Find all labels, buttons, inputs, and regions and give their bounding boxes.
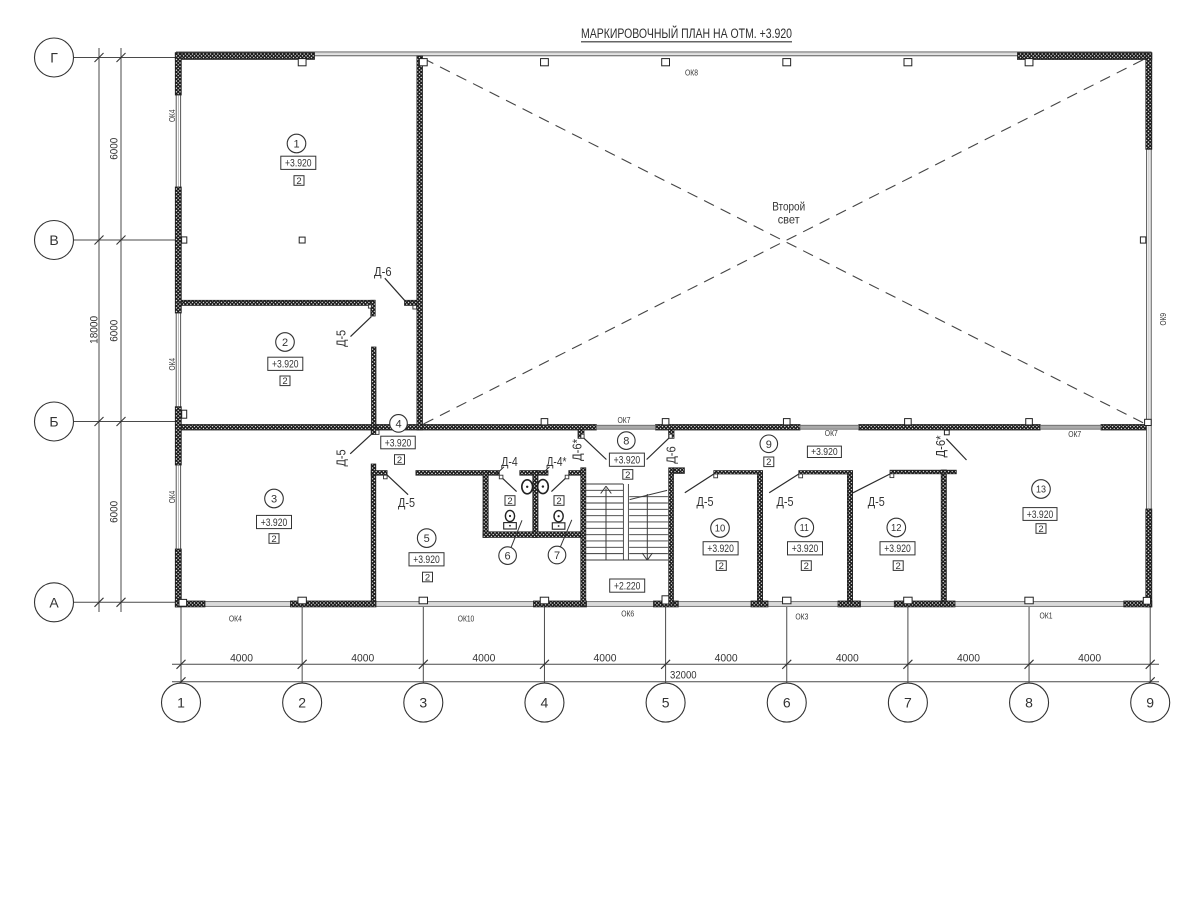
svg-text:В: В <box>49 232 58 248</box>
svg-text:4: 4 <box>395 418 401 430</box>
svg-text:6: 6 <box>505 551 511 563</box>
svg-text:2: 2 <box>397 455 402 466</box>
svg-text:Д-5: Д-5 <box>868 495 885 509</box>
svg-text:2: 2 <box>298 695 306 711</box>
svg-text:2: 2 <box>425 572 430 583</box>
svg-text:13: 13 <box>1036 485 1046 496</box>
svg-text:4000: 4000 <box>351 652 374 664</box>
svg-text:18000: 18000 <box>89 316 101 344</box>
svg-text:3: 3 <box>419 695 427 711</box>
svg-text:4000: 4000 <box>957 652 980 664</box>
svg-text:4000: 4000 <box>715 652 738 664</box>
svg-text:11: 11 <box>800 523 809 534</box>
svg-text:+3.920: +3.920 <box>811 447 838 458</box>
svg-text:4000: 4000 <box>594 652 617 664</box>
svg-text:+3.920: +3.920 <box>272 359 299 371</box>
svg-text:Д-4*: Д-4* <box>547 455 567 469</box>
svg-text:6000: 6000 <box>108 501 120 523</box>
svg-text:1: 1 <box>293 138 299 150</box>
svg-text:ОК10: ОК10 <box>458 615 475 624</box>
svg-text:2: 2 <box>766 457 771 468</box>
svg-text:ОК3: ОК3 <box>795 613 808 622</box>
svg-text:3: 3 <box>271 493 277 505</box>
svg-text:ОК4: ОК4 <box>168 109 177 122</box>
svg-text:ОК4: ОК4 <box>168 358 177 371</box>
svg-text:Д-4: Д-4 <box>501 455 518 469</box>
svg-text:2: 2 <box>625 470 630 481</box>
svg-text:2: 2 <box>507 496 512 507</box>
svg-text:А: А <box>49 594 59 610</box>
svg-text:4: 4 <box>541 695 549 711</box>
svg-text:2: 2 <box>1038 524 1043 535</box>
svg-text:+3.920: +3.920 <box>707 543 734 555</box>
svg-text:+3.920: +3.920 <box>261 517 288 529</box>
svg-text:6: 6 <box>783 695 791 711</box>
svg-text:2: 2 <box>282 337 288 349</box>
svg-text:Д-5: Д-5 <box>777 495 794 509</box>
svg-text:ОК6: ОК6 <box>621 610 634 619</box>
svg-text:+3.920: +3.920 <box>385 437 412 449</box>
svg-text:9: 9 <box>1146 695 1154 711</box>
svg-text:+3.920: +3.920 <box>413 554 440 566</box>
svg-text:+3.920: +3.920 <box>792 543 819 555</box>
svg-text:свет: свет <box>778 215 801 227</box>
svg-text:+2.220: +2.220 <box>614 580 641 592</box>
svg-text:Д-6: Д-6 <box>374 265 392 279</box>
svg-text:Д-5: Д-5 <box>697 495 714 509</box>
svg-text:2: 2 <box>282 376 287 387</box>
svg-text:ОК4: ОК4 <box>168 490 177 503</box>
svg-text:2: 2 <box>296 176 301 187</box>
svg-text:6000: 6000 <box>108 320 120 342</box>
svg-text:Д-5: Д-5 <box>335 449 349 466</box>
svg-text:32000: 32000 <box>670 669 697 681</box>
svg-text:Д-5: Д-5 <box>335 330 349 347</box>
svg-text:+3.920: +3.920 <box>884 543 911 555</box>
svg-text:4000: 4000 <box>230 652 253 664</box>
svg-text:+3.920: +3.920 <box>614 455 641 467</box>
svg-text:2: 2 <box>804 561 809 572</box>
svg-text:1: 1 <box>177 695 185 711</box>
svg-text:4000: 4000 <box>472 652 495 664</box>
svg-text:5: 5 <box>662 695 670 711</box>
svg-text:6000: 6000 <box>108 138 120 160</box>
svg-text:ОК1: ОК1 <box>1040 612 1053 621</box>
svg-text:ОК8: ОК8 <box>685 69 698 78</box>
svg-text:Второй: Второй <box>772 202 805 214</box>
svg-text:8: 8 <box>623 436 629 448</box>
svg-text:2: 2 <box>556 496 561 507</box>
svg-text:2: 2 <box>271 534 276 545</box>
svg-text:ОК7: ОК7 <box>618 416 631 425</box>
svg-text:7: 7 <box>554 550 560 562</box>
svg-text:10: 10 <box>715 524 726 535</box>
svg-text:МАРКИРОВОЧНЫЙ ПЛАН НА ОТМ. +3.: МАРКИРОВОЧНЫЙ ПЛАН НА ОТМ. +3.920 <box>581 24 792 42</box>
svg-text:ОК7: ОК7 <box>1068 430 1081 439</box>
svg-text:Д-6*: Д-6* <box>934 435 948 457</box>
svg-text:5: 5 <box>424 533 430 545</box>
svg-text:+3.920: +3.920 <box>285 158 312 170</box>
svg-text:12: 12 <box>891 523 902 534</box>
svg-text:4000: 4000 <box>1078 652 1101 664</box>
svg-text:+3.920: +3.920 <box>1027 509 1054 521</box>
svg-text:Д-6: Д-6 <box>664 446 678 464</box>
svg-text:2: 2 <box>896 561 901 572</box>
svg-text:8: 8 <box>1025 695 1033 711</box>
svg-text:Д-5: Д-5 <box>398 496 415 510</box>
svg-text:ОК4: ОК4 <box>229 615 242 624</box>
svg-text:7: 7 <box>904 695 912 711</box>
svg-text:4000: 4000 <box>836 652 859 664</box>
svg-text:Д-6*: Д-6* <box>571 439 585 461</box>
svg-text:9: 9 <box>766 439 772 451</box>
svg-text:Г: Г <box>50 50 58 66</box>
svg-text:ОК7: ОК7 <box>825 429 838 438</box>
svg-text:Б: Б <box>49 414 58 430</box>
svg-text:2: 2 <box>719 561 724 572</box>
svg-text:ОК9: ОК9 <box>1159 313 1168 326</box>
